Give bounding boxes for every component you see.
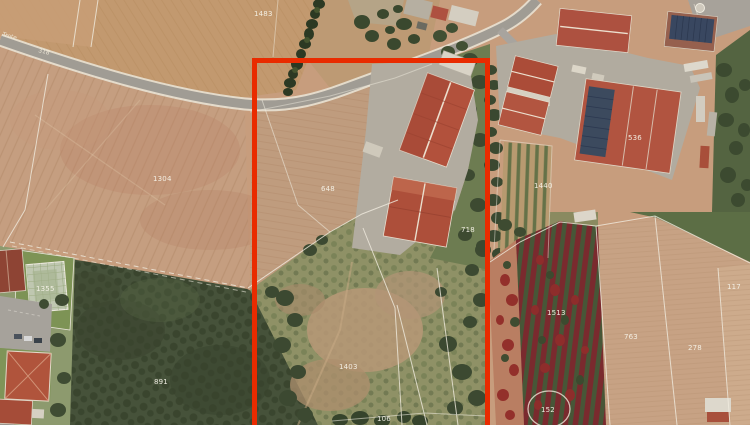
car <box>14 334 22 339</box>
parcel-label-718: 718 <box>461 226 475 234</box>
parcel-label-152: 152 <box>541 406 555 414</box>
roundabout-icon <box>696 4 705 13</box>
parcel-label-1440: 1440 <box>534 182 553 190</box>
parcel-label-117: 117 <box>727 283 741 291</box>
warehouse-d <box>575 79 681 174</box>
parcel-label-763: 763 <box>624 333 638 341</box>
house-1 <box>0 249 26 294</box>
parcel-label-536: 536 <box>628 134 642 142</box>
parcel-label-278: 278 <box>688 344 702 352</box>
residential-left <box>0 246 75 425</box>
aerial-map-canvas: Trote 318 1483 1304 648 536 1440 718 135… <box>0 0 750 425</box>
house-2 <box>5 351 51 401</box>
parcel-label-1403: 1403 <box>339 363 358 371</box>
parcel-label-1355: 1355 <box>36 285 55 293</box>
parcel-label-648: 648 <box>321 185 335 193</box>
parcel-label-1304: 1304 <box>153 175 172 183</box>
warehouse-b <box>383 177 456 247</box>
parcel-label-1483: 1483 <box>254 10 273 18</box>
aerial-map: Trote 318 1483 1304 648 536 1440 718 135… <box>0 0 750 425</box>
warehouse-f <box>664 11 717 51</box>
car <box>34 338 42 343</box>
car <box>24 336 32 341</box>
farm-building-bottom-right <box>705 398 731 422</box>
warehouse-e <box>556 8 631 52</box>
parcel-label-106: 106 <box>377 415 391 423</box>
parcel-label-891: 891 <box>154 378 168 386</box>
parcel-label-1513: 1513 <box>547 309 566 317</box>
